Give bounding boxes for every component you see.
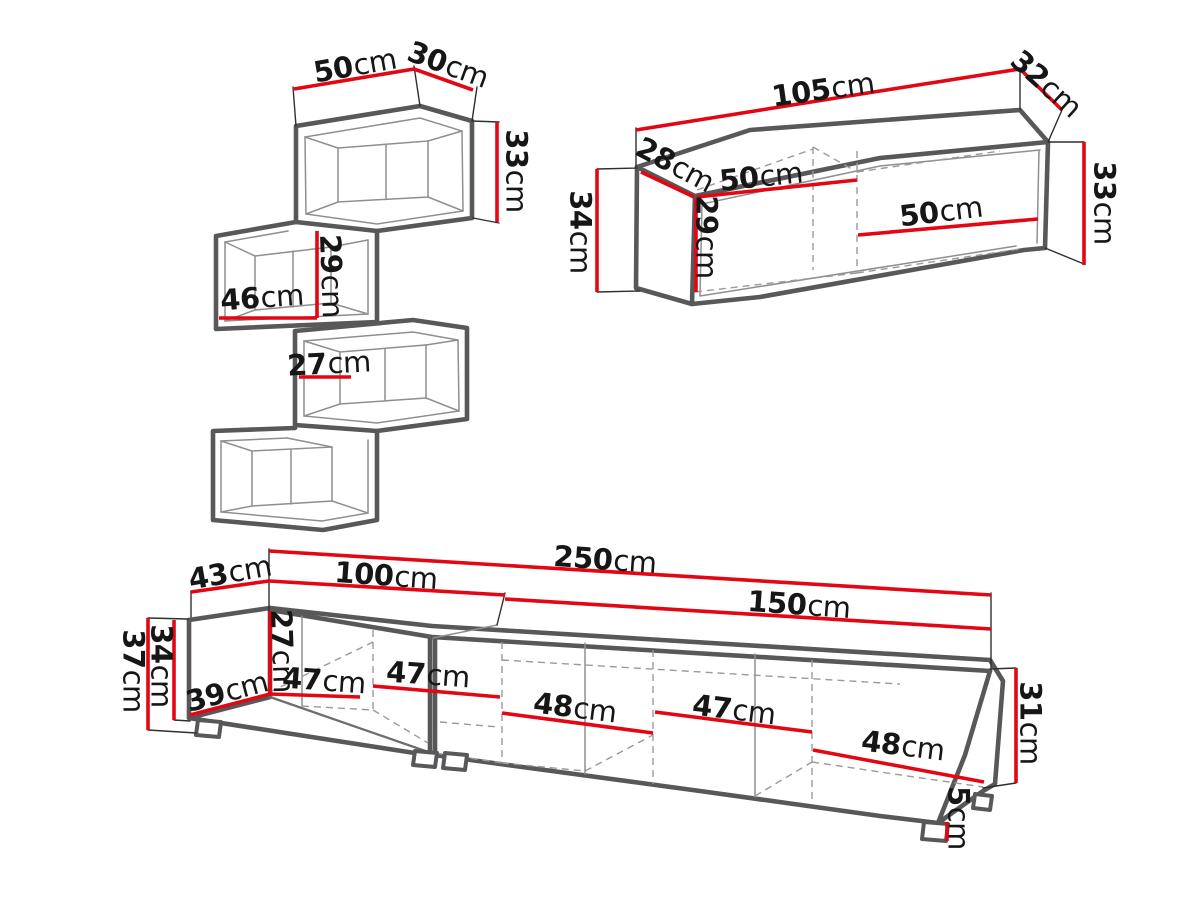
cabinet-inner-height-label: 29cm	[692, 195, 721, 279]
tv-total-width-label: 250cm	[552, 542, 657, 578]
furniture-dimensions-diagram: 50cm 30cm 33cm 29cm 46cm 27cm 105cm 32cm…	[0, 0, 1200, 899]
tv-leg-height-label: 5cm	[944, 786, 973, 850]
shelf-height-label: 33cm	[502, 129, 531, 213]
tv-side-height-label: 34cm	[147, 624, 176, 708]
shelf-inner-height-label: 29cm	[315, 234, 347, 319]
tv-right-width-label: 150cm	[746, 587, 851, 623]
wall-cabinet-drawing	[597, 69, 1084, 304]
cabinet-side-height-label: 34cm	[566, 190, 595, 274]
shelf-upper-inner-width-label: 27cm	[287, 347, 372, 380]
tv-left-width-label: 100cm	[333, 558, 438, 594]
shelf-inner-width-label: 46cm	[219, 281, 304, 316]
tv-right-height-label: 31cm	[1016, 681, 1045, 765]
cabinet-inner-width-left-label: 50cm	[718, 158, 804, 196]
tv-door1-width-label: 47cm	[281, 664, 366, 699]
tv-height-label: 37cm	[119, 629, 148, 713]
cabinet-height-label: 33cm	[1090, 161, 1119, 245]
tv-door2-width-label: 47cm	[385, 658, 470, 693]
